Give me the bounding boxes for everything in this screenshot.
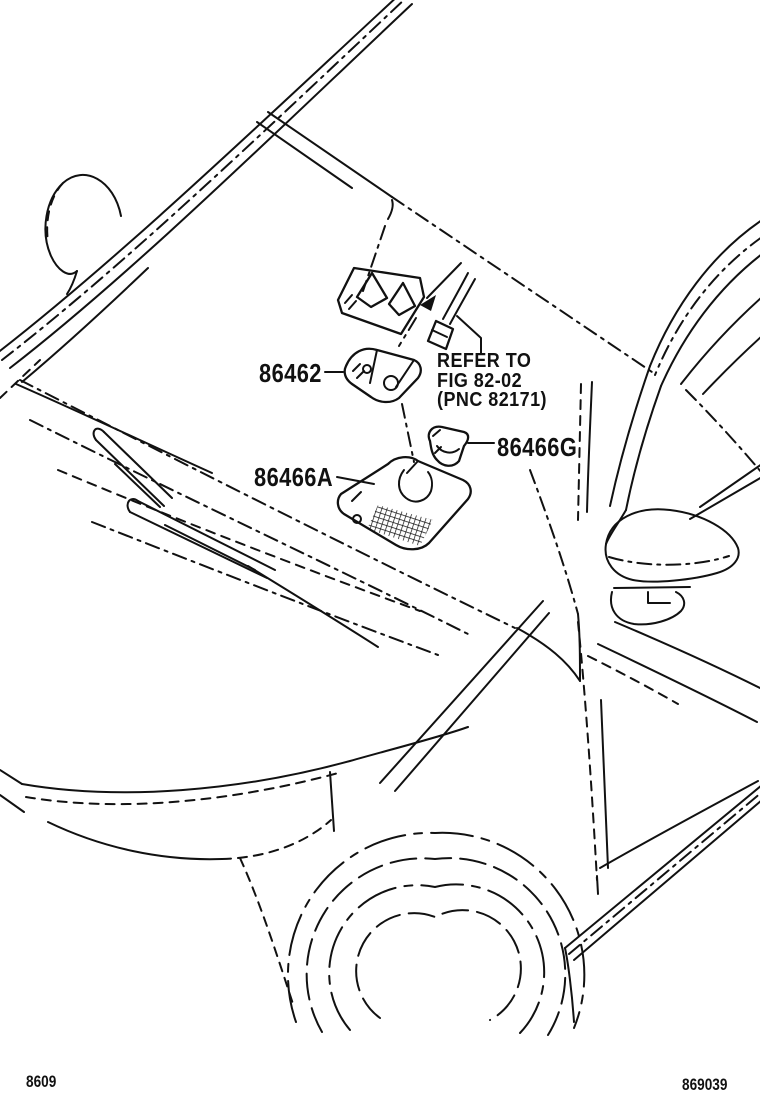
part-label-86466A[interactable]: 86466A <box>254 464 333 490</box>
side-mirror <box>588 464 760 722</box>
roof-rail-right <box>650 220 760 473</box>
sensor-86462-drawing <box>345 349 421 402</box>
vehicle-line-drawing <box>0 0 760 1112</box>
part-label-86466G[interactable]: 86466G <box>497 434 577 460</box>
parts-diagram-page: 86462 86466A 86466G REFER TO FIG 82-02 (… <box>0 0 760 1112</box>
figure-number-code: 869039 <box>682 1075 727 1095</box>
figure-section-code: 8609 <box>26 1072 56 1092</box>
a-pillar-left <box>0 0 412 398</box>
refer-note-line-3: (PNC 82171) <box>437 391 547 411</box>
retainer-86466G-drawing <box>429 427 468 466</box>
hood-fender <box>0 601 549 859</box>
refer-note-line-1: REFER TO <box>437 352 547 372</box>
interior-mirror-silhouette <box>45 175 121 294</box>
a-pillar-right <box>517 366 661 681</box>
front-wheel <box>240 833 584 1035</box>
refer-note: REFER TO FIG 82-02 (PNC 82171) <box>437 352 547 411</box>
connector-cable-drawing <box>420 263 475 349</box>
cover-86466A-drawing <box>338 457 471 549</box>
cowl-wiper-area <box>16 380 515 655</box>
windshield-top-edge <box>257 112 652 372</box>
part-label-86462[interactable]: 86462 <box>259 360 322 386</box>
